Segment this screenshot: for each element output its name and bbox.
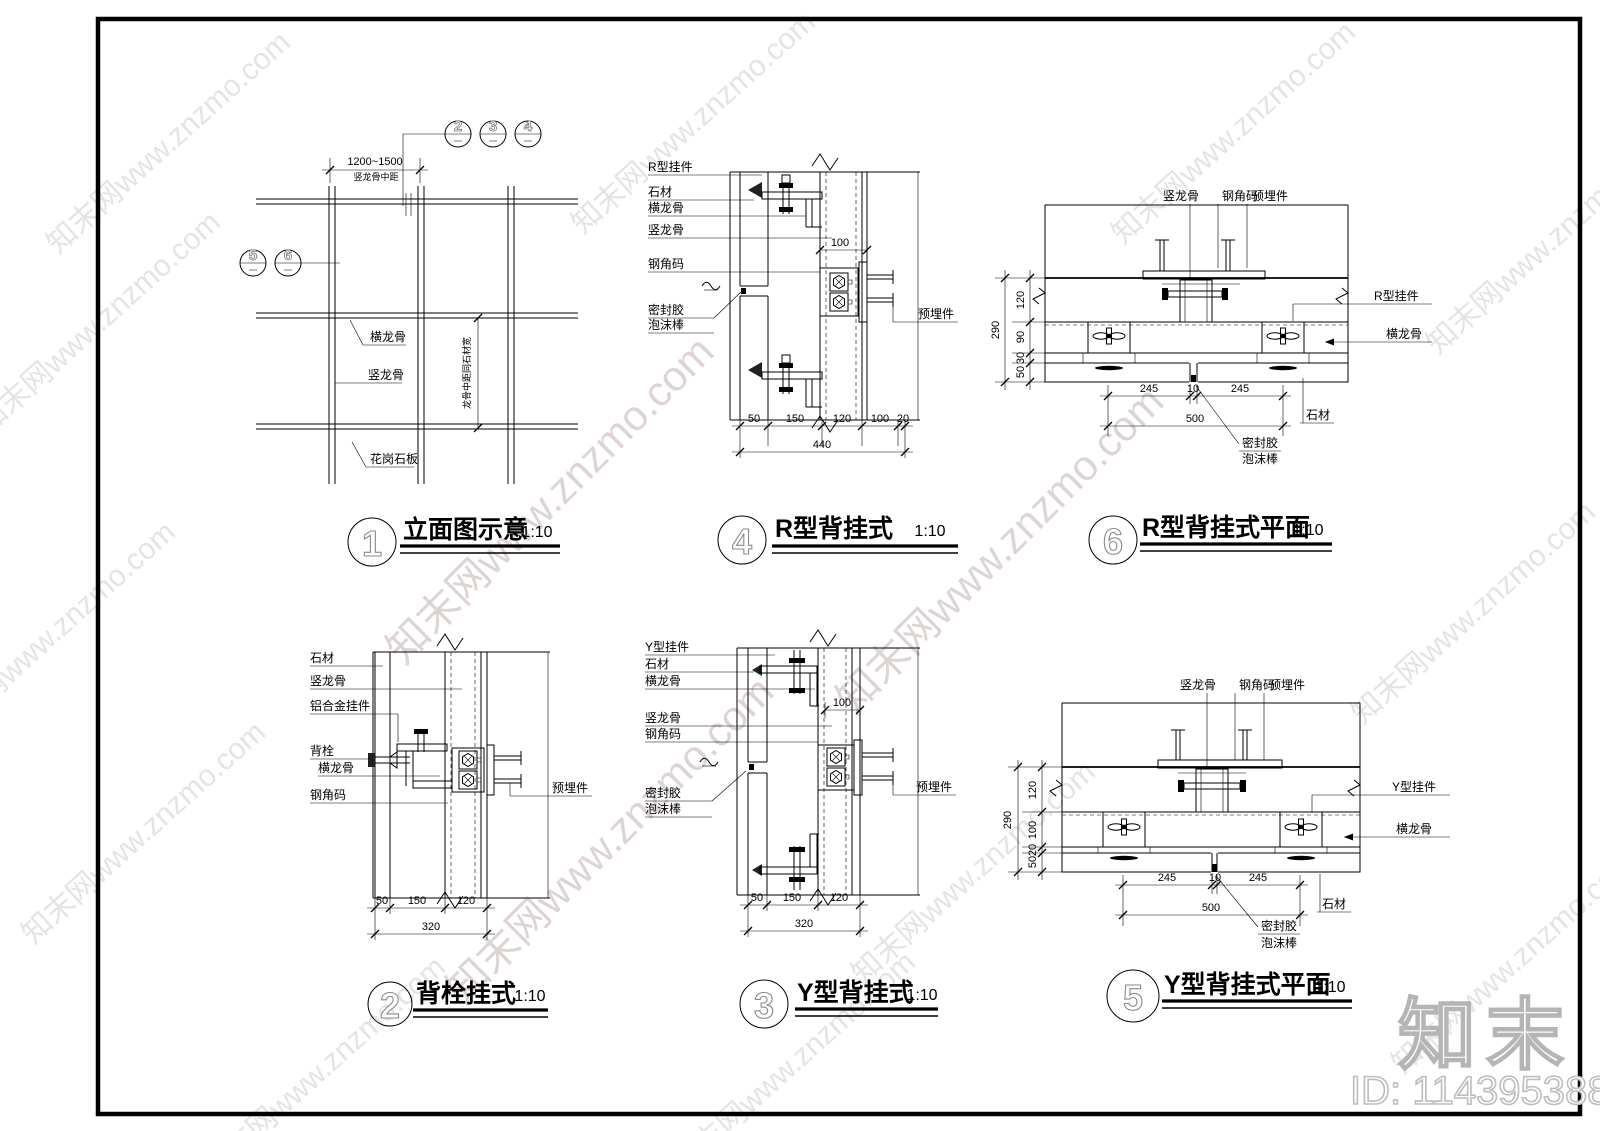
watermark-text: 知末网www.znzmo.com xyxy=(1421,125,1600,360)
dim: 120 xyxy=(830,892,848,904)
watermark-text: 知末网www.znzmo.com xyxy=(1346,495,1600,730)
dim: 50 xyxy=(748,413,760,425)
label: 背栓 xyxy=(310,743,334,758)
dim: 150 xyxy=(783,892,801,904)
title-number: 3 xyxy=(754,985,774,1026)
label: R型挂件 xyxy=(1374,289,1419,303)
watermark-text: 知末网www.znzmo.com xyxy=(846,755,1102,990)
callout-3: 3 xyxy=(480,118,506,147)
dim: 120 xyxy=(1027,781,1039,799)
dim-total: 440 xyxy=(813,439,831,451)
watermark-text: 知末网www.znzmo.com xyxy=(0,205,227,440)
label-shulonggu: 竖龙骨 xyxy=(368,368,404,382)
label: 泡沫棒 xyxy=(648,318,684,332)
title-number: 2 xyxy=(380,985,400,1026)
title-4: 4 R型背挂式 1:10 xyxy=(718,515,958,564)
watermark-text: 知末网www.znzmo.com xyxy=(1106,15,1362,250)
label: 石材 xyxy=(310,651,334,665)
title-6: 6 R型背挂式平面 1:10 xyxy=(1089,514,1332,564)
dim-total: 500 xyxy=(1202,902,1220,914)
callout-number: 6 xyxy=(284,247,292,264)
title-scale: 1:10 xyxy=(1314,979,1345,996)
title-2: 2 背栓挂式 1:10 xyxy=(368,980,548,1026)
title-text: Y型背挂式 xyxy=(797,979,914,1007)
dim-100: 100 xyxy=(833,697,851,709)
label: 铝合金挂件 xyxy=(310,698,370,713)
label: 竖龙骨 xyxy=(310,674,346,688)
title-text: 立面图示意 xyxy=(403,515,528,544)
dim: 120 xyxy=(833,413,851,425)
label: Y型挂件 xyxy=(645,640,689,654)
label: 密封胶 xyxy=(645,785,681,800)
label: 密封胶 xyxy=(1242,435,1278,450)
dim: 245 xyxy=(1249,872,1267,884)
label: 石材 xyxy=(648,185,672,199)
watermark-text: 知末网www.znzmo.com xyxy=(377,327,722,672)
callout-number: 5 xyxy=(249,247,257,264)
label: 竖龙骨 xyxy=(1180,678,1216,692)
label: 横龙骨 xyxy=(1386,327,1422,341)
sheet-frame xyxy=(98,19,1580,1114)
title-number: 4 xyxy=(732,521,752,562)
detail-4-r-type-section: R型挂件 石材 横龙骨 竖龙骨 钢角码 密封胶 泡沫棒 100 预埋件 50 1… xyxy=(648,154,958,458)
dim-total: 290 xyxy=(1002,811,1014,829)
callout-number: 2 xyxy=(454,118,462,135)
dim-total: 500 xyxy=(1186,413,1204,425)
title-scale: 1:10 xyxy=(514,988,545,1005)
cad-sheet: 知末网www.znzmo.com 知末网www.znzmo.com 知末网www… xyxy=(0,0,1600,1131)
title-scale: 1:10 xyxy=(906,987,937,1004)
callout-5: 5 xyxy=(240,247,266,276)
label: 钢角码 xyxy=(310,788,346,802)
dim: 245 xyxy=(1140,383,1158,395)
image-id: ID: 1143953888 xyxy=(1350,1069,1600,1113)
label: 横龙骨 xyxy=(1396,822,1432,836)
title-scale: 1:10 xyxy=(914,523,945,540)
watermark-layer: 知末网www.znzmo.com 知末网www.znzmo.com 知末网www… xyxy=(0,5,1600,1131)
watermark-text: 知末网www.znzmo.com xyxy=(437,667,782,1012)
dim-span: 1200~1500 xyxy=(347,156,402,168)
dim-span-label: 竖龙骨中距 xyxy=(353,171,398,182)
label: 泡沫棒 xyxy=(1242,452,1278,466)
dim: 30 xyxy=(1015,352,1027,364)
label-embed: 预埋件 xyxy=(552,781,588,795)
dim: 120 xyxy=(1015,291,1027,309)
title-scale: 1:10 xyxy=(521,524,552,541)
site-logo: 知末 xyxy=(1398,991,1574,1079)
label: 密封胶 xyxy=(1261,918,1297,933)
label: 预埋件 xyxy=(1252,189,1288,203)
label: 泡沫棒 xyxy=(1261,936,1297,950)
dim: 50 xyxy=(1027,856,1039,868)
label: Y型挂件 xyxy=(1392,780,1436,794)
callout-number: 3 xyxy=(489,118,497,135)
title-text: R型背挂式 xyxy=(775,515,893,543)
title-5: 5 Y型背挂式平面 1:10 xyxy=(1107,970,1352,1022)
watermark-text: 知末网www.znzmo.com xyxy=(196,950,452,1131)
callout-2: 2 xyxy=(445,118,471,147)
dim: 10 xyxy=(1209,872,1221,884)
label: 钢角码 xyxy=(648,257,684,271)
dim: 150 xyxy=(786,413,804,425)
title-number: 6 xyxy=(1103,521,1123,562)
label: R型挂件 xyxy=(648,160,693,174)
title-text: R型背挂式平面 xyxy=(1142,514,1310,542)
watermark-text: 知末网www.znzmo.com xyxy=(0,515,182,750)
title-text: Y型背挂式平面 xyxy=(1164,971,1331,999)
detail-1-elevation: 2 3 4 5 6 1200~1500 竖龙骨中距 龙骨中距同石材宽 横龙骨 竖… xyxy=(240,118,578,484)
label: 石材 xyxy=(1322,897,1346,911)
detail-6-r-type-plan: 120 90 30 50 290 245 10 245 500 竖龙骨 钢角码 … xyxy=(990,189,1432,466)
dim: 50 xyxy=(751,892,763,904)
label: 横龙骨 xyxy=(648,201,684,215)
title-text: 背栓挂式 xyxy=(416,980,516,1008)
callout-number: 4 xyxy=(524,118,533,135)
drawing-canvas: 知末网www.znzmo.com 知末网www.znzmo.com 知末网www… xyxy=(0,0,1600,1131)
dim: 120 xyxy=(457,895,475,907)
label: 钢角码 xyxy=(645,727,681,741)
dim-100: 100 xyxy=(831,237,849,249)
dim: 20 xyxy=(1027,844,1039,856)
label-granite-slab: 花岗石板 xyxy=(370,451,418,466)
label: 竖龙骨 xyxy=(645,711,681,725)
callout-6: 6 xyxy=(275,247,301,276)
label: 石材 xyxy=(1306,408,1330,422)
dim: 20 xyxy=(897,413,909,425)
dim: 90 xyxy=(1015,331,1027,343)
aluminum-hanger-glyph xyxy=(368,729,452,788)
dim: 100 xyxy=(1027,821,1039,839)
dim: 245 xyxy=(1158,872,1176,884)
dim-total: 290 xyxy=(990,321,1002,339)
label: 泡沫棒 xyxy=(645,802,681,816)
dim: 245 xyxy=(1231,383,1249,395)
detail-5-y-type-plan: 120 100 20 50 290 245 10 245 500 竖龙骨 钢角码… xyxy=(1002,678,1450,950)
watermark-text: 知末网www.znzmo.com xyxy=(16,715,272,950)
dim-vertical-label: 龙骨中距同石材宽 xyxy=(461,337,472,409)
dim: 50 xyxy=(376,895,388,907)
dim-total: 320 xyxy=(422,921,440,933)
title-number: 5 xyxy=(1123,977,1143,1018)
label: 竖龙骨 xyxy=(1163,189,1199,203)
watermark-text: 知末网www.znzmo.com xyxy=(666,945,922,1131)
label-embed: 预埋件 xyxy=(918,307,954,321)
dim: 100 xyxy=(871,413,889,425)
dim: 50 xyxy=(1015,366,1027,378)
dim: 150 xyxy=(408,895,426,907)
label: 横龙骨 xyxy=(645,674,681,688)
watermark-text: 知末网www.znzmo.com xyxy=(41,25,297,260)
label: 预埋件 xyxy=(1269,678,1305,692)
label-embed: 预埋件 xyxy=(916,780,952,794)
label: 密封胶 xyxy=(648,302,684,317)
dim-total: 320 xyxy=(795,918,813,930)
label: 石材 xyxy=(645,657,669,671)
title-scale: 1:10 xyxy=(1292,522,1323,539)
title-number: 1 xyxy=(362,523,382,564)
label: 竖龙骨 xyxy=(648,223,684,237)
dim: 10 xyxy=(1187,383,1199,395)
callout-4: 4 xyxy=(515,118,541,147)
label: 横龙骨 xyxy=(318,761,354,775)
label-henglonggu: 横龙骨 xyxy=(370,330,406,344)
